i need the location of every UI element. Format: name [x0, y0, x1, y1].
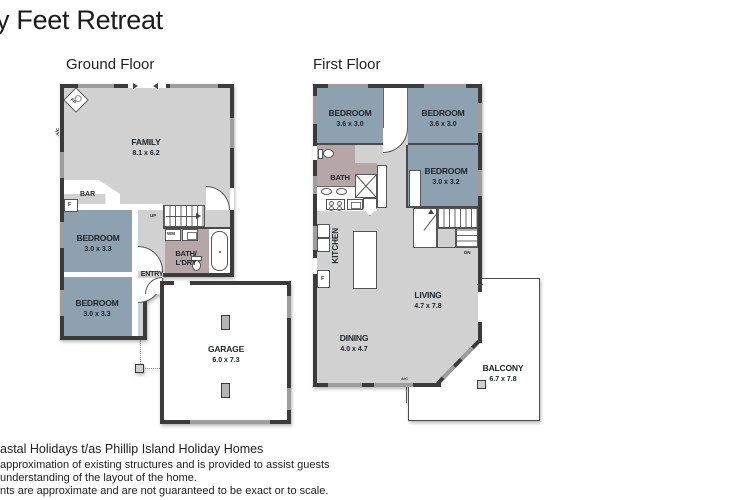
bedroom-r-dims: 3.0 x 3.2 — [432, 179, 459, 186]
fridge-label-ff: F — [321, 276, 324, 282]
bedroom-tl-dims: 3.6 x 3.0 — [336, 121, 363, 128]
cooktop-icon — [326, 199, 345, 210]
ac-line — [406, 387, 407, 403]
window-segment — [478, 170, 482, 196]
down-label: DN — [464, 250, 471, 255]
window-gap — [313, 146, 317, 160]
window-segment — [328, 84, 368, 88]
bath-label: BATH — [330, 173, 349, 182]
slider-arrow-down — [477, 284, 483, 289]
kitchen-label: KITCHEN — [331, 228, 340, 264]
balcony-post — [477, 380, 486, 389]
stairs-down-upper — [437, 208, 478, 228]
living-dims: 4.7 x 7.8 — [414, 303, 441, 310]
linen-closet — [377, 165, 387, 208]
basin-icon — [321, 188, 332, 195]
window-segment — [424, 84, 466, 88]
window-segment — [478, 103, 482, 133]
footer-disclaimer-2: understanding of the layout of the home. — [0, 472, 197, 484]
first-floor-plan: BALCONY 6.7 x 7.8 BATH — [0, 0, 750, 500]
window-segment — [313, 176, 317, 194]
wall-segment — [406, 145, 408, 208]
wardrobe — [409, 170, 421, 207]
cupboard — [317, 224, 330, 238]
window-segment — [328, 383, 362, 387]
island-bench — [353, 231, 377, 289]
shower-icon — [355, 174, 377, 198]
window-segment — [313, 96, 317, 124]
stair-arrow-head — [428, 209, 434, 214]
dining-dims: 4.0 x 4.7 — [340, 346, 367, 353]
cupboard — [317, 238, 330, 252]
toilet-bowl-icon — [323, 149, 334, 158]
window-segment — [313, 226, 317, 250]
stair-mid-landing — [437, 228, 456, 248]
basin-icon — [336, 188, 347, 195]
ac-label-ff: A/C — [401, 376, 408, 381]
footer-disclaimer-1: approximation of existing structures and… — [0, 459, 330, 471]
stairs-down-lower — [456, 228, 478, 248]
footer-disclaimer-3: nts are approximate and are not guarante… — [0, 485, 328, 497]
footer-company: astal Holidays t/as Phillip Island Holid… — [0, 442, 263, 456]
sliding-door-gap — [478, 292, 482, 322]
hall-closet-strip — [383, 88, 408, 128]
floor-plan-page: y Feet Retreat Ground Floor First Floor … — [0, 0, 750, 500]
door-gap — [313, 258, 317, 274]
bedroom-tr-dims: 3.6 x 3.0 — [429, 121, 456, 128]
window-segment — [374, 383, 402, 387]
kitchen-sink-icon — [347, 199, 363, 210]
balcony-dims: 6.7 x 7.8 — [489, 376, 516, 383]
